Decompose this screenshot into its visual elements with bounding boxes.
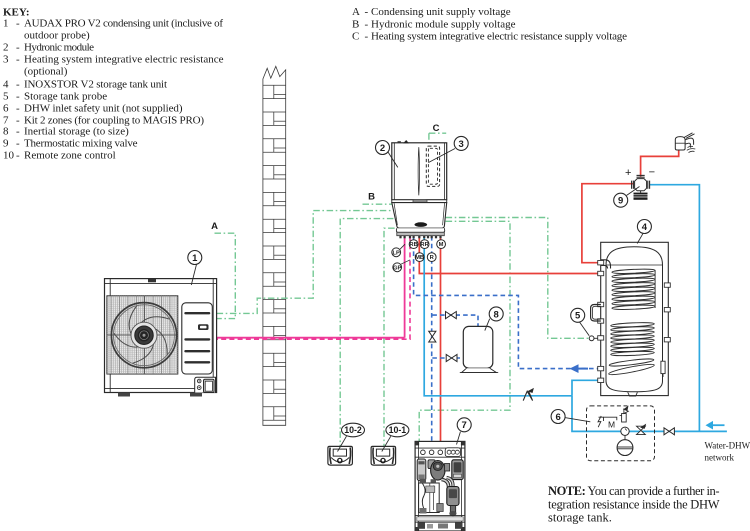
svg-text:-: -: [365, 30, 369, 42]
svg-text:-: -: [365, 6, 369, 18]
svg-text:Condensing unit supply voltage: Condensing unit supply voltage: [371, 6, 511, 18]
svg-text:1: 1: [192, 253, 198, 264]
svg-text:-: -: [16, 114, 20, 126]
svg-text:9: 9: [3, 138, 9, 150]
svg-text:-: -: [16, 126, 20, 138]
svg-text:Hydronic module supply voltage: Hydronic module supply voltage: [371, 18, 516, 30]
svg-text:2: 2: [380, 143, 385, 154]
svg-text:B: B: [368, 192, 375, 203]
svg-text:Kit 2 zones (for coupling to M: Kit 2 zones (for coupling to MAGIS PRO): [24, 114, 204, 126]
svg-text:-: -: [16, 54, 20, 66]
svg-text:Storage tank probe: Storage tank probe: [24, 90, 107, 102]
svg-text:-: -: [16, 138, 20, 150]
svg-text:10: 10: [3, 150, 15, 162]
svg-text:10-2: 10-2: [344, 425, 362, 435]
svg-text:-: -: [365, 18, 369, 30]
svg-text:Water-DHW: Water-DHW: [705, 441, 750, 451]
svg-text:1: 1: [3, 18, 9, 30]
svg-text:Remote zone control: Remote zone control: [24, 150, 116, 162]
svg-text:-: -: [16, 150, 20, 162]
svg-text:-: -: [16, 90, 20, 102]
svg-text:7: 7: [462, 420, 467, 431]
svg-text:−: −: [649, 167, 655, 179]
svg-text:network: network: [705, 453, 735, 463]
svg-text:MB: MB: [415, 255, 424, 261]
svg-text:NOTE: You can provide a furthe: NOTE: You can provide a further in-: [548, 484, 720, 498]
svg-text:tegration resistance inside th: tegration resistance inside the DHW: [548, 498, 720, 512]
svg-text:3: 3: [3, 54, 9, 66]
svg-text:Inertial storage (to size): Inertial storage (to size): [24, 126, 129, 138]
svg-text:(optional): (optional): [24, 66, 68, 78]
svg-text:RR: RR: [420, 242, 429, 248]
svg-text:M: M: [439, 242, 444, 248]
svg-text:Thermostatic mixing valve: Thermostatic mixing valve: [24, 138, 138, 150]
svg-text:-: -: [16, 42, 20, 54]
svg-text:A: A: [352, 6, 360, 18]
svg-text:INOXSTOR V2 storage tank unit: INOXSTOR V2 storage tank unit: [24, 78, 167, 90]
svg-text:C: C: [433, 123, 440, 134]
svg-text:-: -: [16, 78, 20, 90]
svg-text:8: 8: [3, 126, 9, 138]
svg-text:+: +: [625, 167, 631, 179]
svg-text:A: A: [211, 221, 218, 232]
svg-text:6: 6: [555, 412, 560, 423]
svg-text:GP: GP: [393, 265, 402, 271]
svg-text:RB: RB: [409, 242, 417, 248]
svg-text:Heating system integrative ele: Heating system integrative electric resi…: [371, 30, 627, 42]
svg-text:KEY:: KEY:: [3, 6, 30, 18]
svg-text:3: 3: [459, 139, 464, 150]
svg-text:4: 4: [642, 222, 648, 233]
svg-text:storage tank.: storage tank.: [548, 511, 612, 525]
svg-text:7: 7: [3, 114, 9, 126]
svg-text:5: 5: [575, 311, 581, 322]
svg-text:5: 5: [3, 90, 9, 102]
svg-text:4: 4: [3, 78, 9, 90]
svg-text:8: 8: [494, 309, 499, 320]
svg-text:Hydronic module: Hydronic module: [24, 42, 94, 54]
svg-text:-: -: [16, 102, 20, 114]
svg-text:2: 2: [3, 42, 9, 54]
svg-text:10-1: 10-1: [389, 425, 407, 435]
svg-text:Heating system integrative: Heating system integrative electric resi…: [24, 54, 224, 66]
svg-text:LP: LP: [392, 250, 400, 256]
svg-text:9: 9: [618, 196, 623, 207]
svg-text:M: M: [608, 420, 615, 430]
svg-text:outdoor probe): outdoor probe): [24, 30, 90, 42]
svg-text:B: B: [352, 18, 359, 30]
svg-text:6: 6: [3, 102, 9, 114]
svg-text:C: C: [352, 30, 359, 42]
svg-text:DHW inlet safety unit (not sup: DHW inlet safety unit (not supplied): [24, 102, 183, 114]
svg-text:-: -: [16, 18, 20, 30]
svg-text:AUDAX PRO V2 condensing unit (: AUDAX PRO V2 condensing unit (inclusive …: [24, 18, 223, 30]
